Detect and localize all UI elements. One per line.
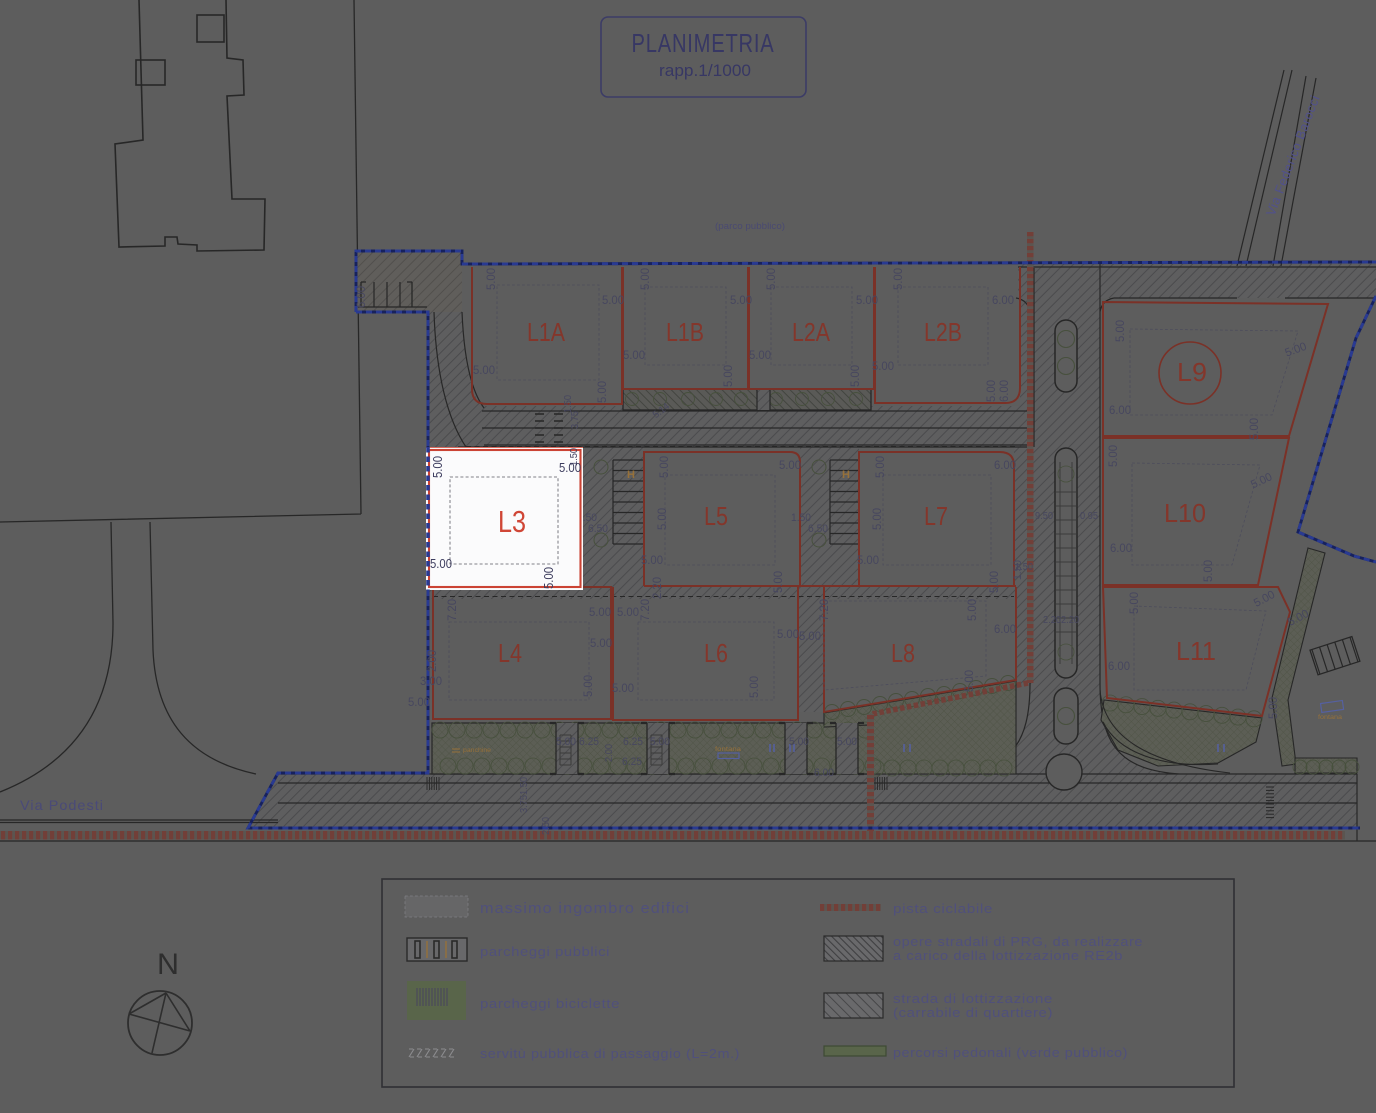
svg-text:6.00: 6.00 [356, 286, 368, 308]
svg-text:(carrabile di quartiere): (carrabile di quartiere) [893, 1005, 1053, 1020]
svg-text:5.00: 5.00 [590, 638, 612, 650]
svg-text:5.00: 5.00 [857, 555, 879, 567]
svg-text:5.00: 5.00 [967, 599, 979, 621]
svg-text:5.00: 5.00 [799, 631, 821, 643]
svg-text:2.00: 2.00 [604, 744, 615, 762]
svg-text:5.00: 5.00 [789, 736, 809, 748]
svg-text:7.20: 7.20 [447, 599, 459, 621]
svg-text:5.00: 5.00 [430, 557, 452, 571]
svg-text:5.00: 5.00 [986, 380, 998, 402]
svg-text:2.20: 2.20 [1043, 615, 1061, 626]
svg-text:5.00: 5.00 [542, 567, 556, 589]
svg-text:5.00: 5.00 [893, 268, 905, 290]
svg-text:5.00: 5.00 [1115, 320, 1127, 342]
svg-text:5.00: 5.00 [872, 508, 884, 530]
svg-text:5.00: 5.00 [989, 571, 1001, 593]
svg-text:5.00: 5.00 [556, 736, 576, 748]
svg-text:fontana: fontana [1318, 715, 1343, 721]
svg-text:3.00: 3.00 [420, 676, 442, 688]
svg-text:H: H [627, 469, 635, 481]
svg-text:5.00: 5.00 [1268, 697, 1280, 719]
svg-text:5.00: 5.00 [597, 381, 609, 403]
svg-text:6.25: 6.25 [579, 736, 599, 748]
svg-text:H: H [842, 469, 850, 481]
svg-text:L11: L11 [1176, 636, 1216, 666]
svg-text:5.00: 5.00 [583, 675, 595, 697]
svg-text:6.00: 6.00 [1108, 661, 1130, 673]
svg-text:PLANIMETRIA: PLANIMETRIA [632, 28, 775, 58]
svg-text:5.00: 5.00 [837, 736, 857, 748]
svg-text:5.00: 5.00 [964, 670, 976, 692]
svg-text:Via Podesti: Via Podesti [20, 797, 104, 813]
svg-text:L10: L10 [1164, 498, 1206, 528]
svg-text:servitù pubblica di passaggio: servitù pubblica di passaggio (L=2m.) [480, 1046, 740, 1061]
svg-text:6.00: 6.00 [1110, 543, 1132, 555]
svg-text:5.00: 5.00 [486, 268, 498, 290]
svg-text:5.00: 5.00 [872, 361, 894, 373]
svg-text:2.00: 2.00 [427, 650, 439, 672]
svg-text:5.00: 5.00 [1108, 445, 1120, 467]
svg-text:6.50: 6.50 [808, 523, 828, 535]
svg-text:5.00: 5.00 [766, 268, 778, 290]
svg-text:7.20: 7.20 [819, 599, 831, 621]
svg-text:6.00: 6.00 [814, 767, 834, 779]
svg-text:6.25: 6.25 [623, 736, 643, 748]
svg-text:pista ciclabile: pista ciclabile [893, 901, 993, 916]
svg-text:6.00: 6.00 [994, 624, 1016, 636]
svg-text:5.00: 5.00 [773, 571, 785, 593]
svg-text:5.00: 5.00 [730, 295, 752, 307]
svg-text:L9: L9 [1177, 357, 1207, 387]
svg-text:5.00: 5.00 [602, 295, 624, 307]
svg-text:L6: L6 [704, 638, 728, 668]
svg-text:5.00: 5.00 [723, 365, 735, 387]
svg-text:massimo ingombro edifici: massimo ingombro edifici [480, 901, 690, 917]
svg-text:strada di lottizzazione: strada di lottizzazione [893, 991, 1053, 1006]
svg-text:2.20: 2.20 [652, 577, 664, 599]
svg-text:parcheggi pubblici: parcheggi pubblici [480, 944, 610, 959]
svg-text:5.00: 5.00 [659, 456, 671, 478]
svg-text:1.50: 1.50 [519, 777, 530, 795]
svg-text:5.00: 5.00 [1203, 560, 1215, 582]
svg-text:L7: L7 [924, 501, 948, 531]
svg-text:5.00: 5.00 [875, 456, 887, 478]
svg-text:opere stradali di PRG, da real: opere stradali di PRG, da realizzare [893, 934, 1143, 949]
svg-text:L8: L8 [891, 638, 915, 668]
svg-text:9.50: 9.50 [1035, 511, 1053, 522]
svg-text:(parco pubblico): (parco pubblico) [715, 221, 785, 232]
svg-text:fontana: fontana [715, 746, 741, 753]
svg-text:5.00: 5.00 [1129, 592, 1141, 614]
svg-text:5.00: 5.00 [856, 295, 878, 307]
svg-text:L2B: L2B [924, 317, 962, 347]
svg-text:N: N [157, 948, 179, 981]
svg-text:5.00: 5.00 [657, 508, 669, 530]
svg-text:rapp.1/1000: rapp.1/1000 [659, 61, 751, 80]
svg-text:5.00: 5.00 [749, 350, 771, 362]
svg-text:L1B: L1B [666, 317, 704, 347]
svg-text:a carico della lottizzazione R: a carico della lottizzazione RE2b [893, 948, 1123, 963]
svg-text:1.50: 1.50 [1015, 562, 1033, 573]
svg-text:5.00: 5.00 [749, 676, 761, 698]
svg-text:3.75: 3.75 [570, 411, 581, 429]
svg-text:L1A: L1A [527, 317, 566, 347]
svg-text:1.50: 1.50 [568, 448, 580, 466]
svg-text:6.50: 6.50 [588, 523, 608, 535]
svg-text:5.00: 5.00 [612, 683, 634, 695]
svg-text:5.00: 5.00 [408, 697, 430, 709]
svg-text:1.50: 1.50 [563, 395, 574, 413]
svg-text:panchine: panchine [463, 747, 491, 754]
svg-text:2.20: 2.20 [1061, 615, 1079, 626]
svg-text:5.00: 5.00 [777, 629, 799, 641]
svg-text:3.75: 3.75 [519, 795, 530, 813]
svg-text:6.00: 6.00 [994, 460, 1016, 472]
svg-text:parcheggi biciclette: parcheggi biciclette [480, 996, 620, 1011]
svg-text:L5: L5 [704, 501, 728, 531]
svg-text:5.00: 5.00 [431, 456, 445, 478]
svg-text:0.95: 0.95 [1080, 511, 1098, 522]
svg-text:5.00: 5.00 [850, 365, 862, 387]
svg-text:5.00: 5.00 [650, 736, 670, 748]
svg-text:L4: L4 [498, 638, 522, 668]
svg-text:5.00: 5.00 [1249, 418, 1261, 440]
svg-text:L3: L3 [498, 504, 526, 539]
svg-text:5.00: 5.00 [589, 607, 611, 619]
svg-text:5.00: 5.00 [640, 268, 652, 290]
svg-text:6.00: 6.00 [999, 380, 1011, 402]
svg-text:L2A: L2A [792, 317, 831, 347]
svg-text:2.50: 2.50 [541, 817, 552, 835]
svg-text:5.00: 5.00 [641, 555, 663, 567]
svg-text:5.00: 5.00 [623, 350, 645, 362]
svg-text:5.00: 5.00 [473, 365, 495, 377]
svg-text:6.00: 6.00 [1109, 405, 1131, 417]
svg-text:5.00: 5.00 [617, 607, 639, 619]
svg-text:5.00: 5.00 [779, 460, 801, 472]
svg-text:7.20: 7.20 [640, 599, 652, 621]
svg-text:6.25: 6.25 [622, 756, 642, 768]
svg-text:percorsi pedonali (verde pubbl: percorsi pedonali (verde pubblico) [893, 1045, 1128, 1060]
svg-text:6.00: 6.00 [992, 295, 1014, 307]
